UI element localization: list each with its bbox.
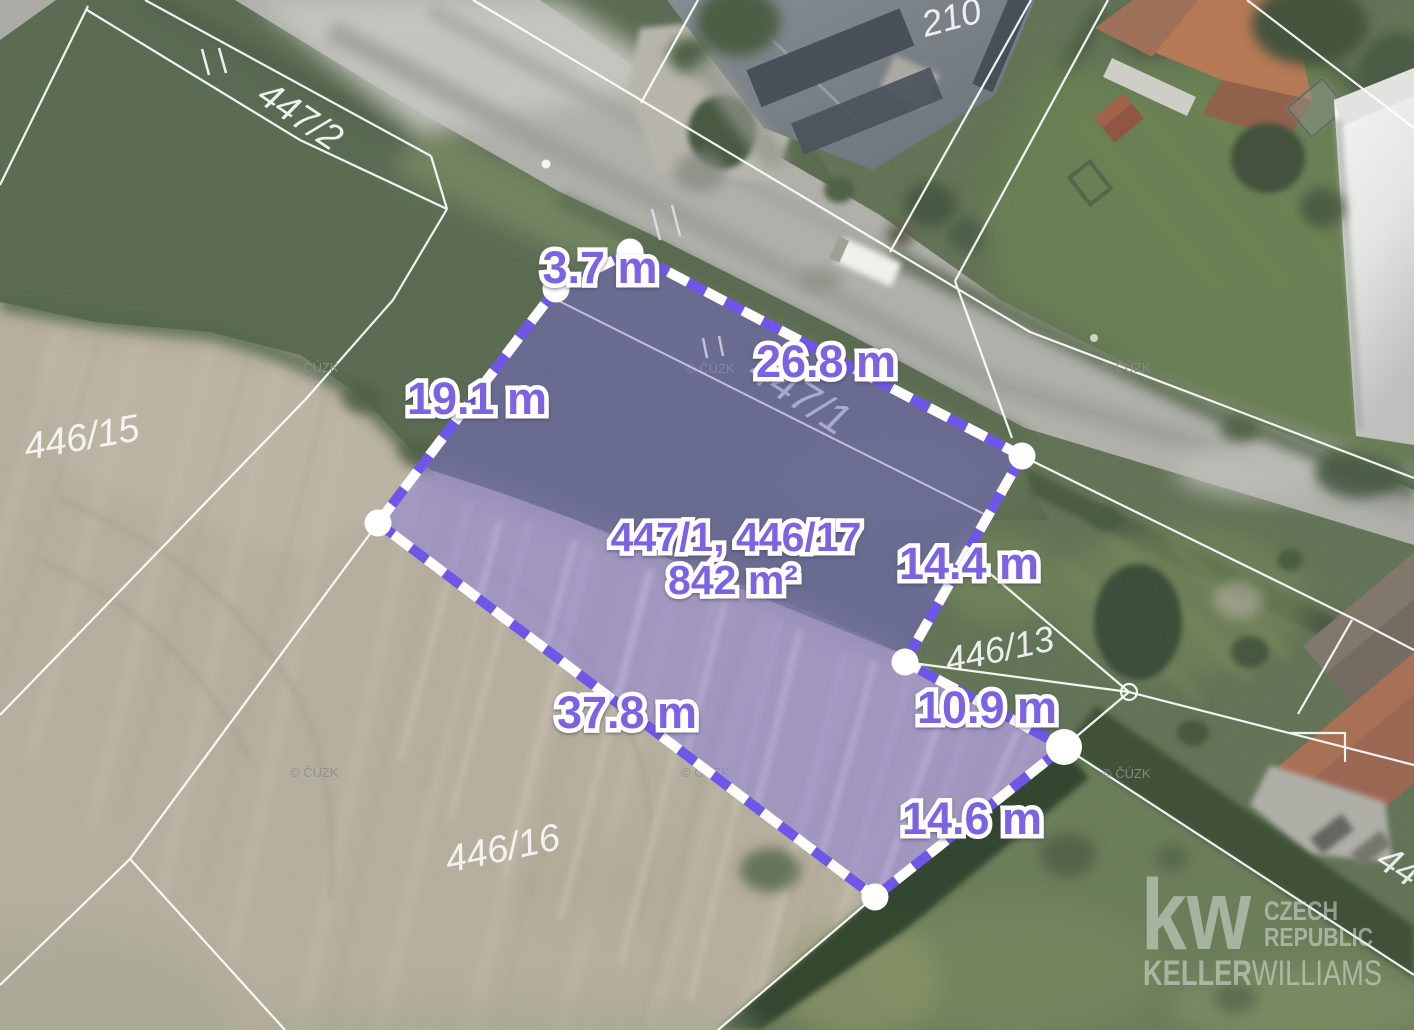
svg-text:19.1 m: 19.1 m xyxy=(407,373,547,424)
svg-text:842 m²: 842 m² xyxy=(668,557,798,603)
svg-text:REPUBLIC: REPUBLIC xyxy=(1264,922,1373,952)
svg-text:10.9 m: 10.9 m xyxy=(917,682,1057,733)
svg-text:26.8 m: 26.8 m xyxy=(756,336,896,387)
svg-text:14.4 m: 14.4 m xyxy=(899,538,1039,589)
svg-text:© ČÚZK: © ČÚZK xyxy=(1102,766,1151,781)
svg-text:3.7 m: 3.7 m xyxy=(542,242,657,293)
svg-text:© ČÚZK: © ČÚZK xyxy=(290,765,339,780)
svg-text:14.6 m: 14.6 m xyxy=(902,793,1042,844)
svg-text:KELLERWILLIAMS: KELLERWILLIAMS xyxy=(1143,954,1382,993)
svg-text:© ČÚZK: © ČÚZK xyxy=(1102,360,1151,375)
svg-text:37.8 m: 37.8 m xyxy=(557,687,697,738)
svg-text:© ČÚZK: © ČÚZK xyxy=(290,360,339,375)
svg-text:447/1, 446/17: 447/1, 446/17 xyxy=(611,514,862,560)
